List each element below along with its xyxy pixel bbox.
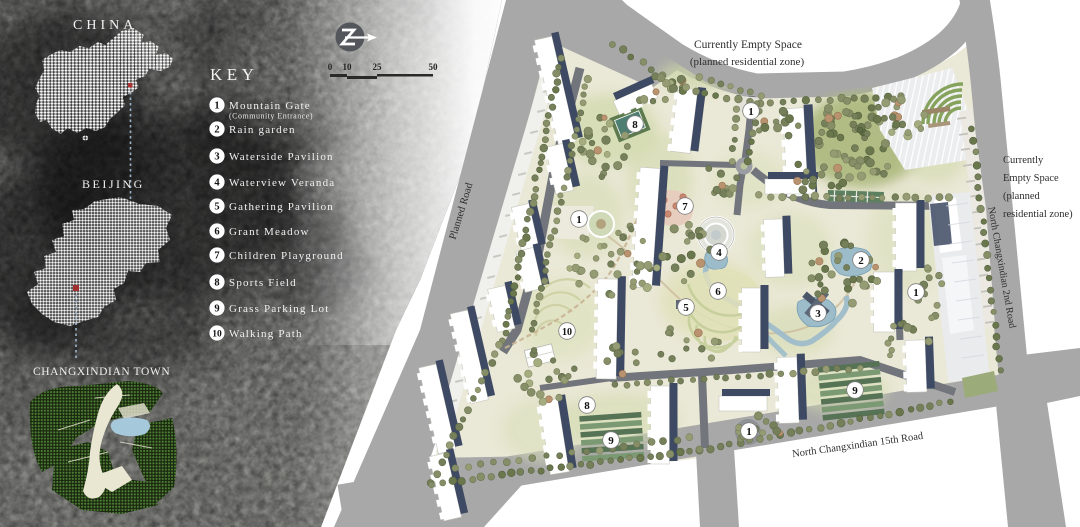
svg-text:Grass Parking Lot: Grass Parking Lot (229, 303, 329, 315)
svg-text:Grant Meadow: Grant Meadow (229, 226, 310, 238)
svg-text:5: 5 (683, 302, 689, 314)
svg-text:1: 1 (748, 106, 754, 118)
svg-text:Gathering Pavilion: Gathering Pavilion (229, 201, 334, 213)
svg-text:Rain garden: Rain garden (229, 124, 296, 136)
svg-text:3: 3 (214, 152, 219, 163)
svg-text:8: 8 (632, 119, 638, 131)
svg-text:5: 5 (214, 202, 219, 213)
svg-text:Waterview Veranda: Waterview Veranda (229, 177, 335, 189)
svg-text:(planned residential zone): (planned residential zone) (690, 56, 805, 68)
svg-text:KEY: KEY (210, 65, 258, 84)
svg-text:10: 10 (343, 62, 353, 72)
svg-text:Walking Path: Walking Path (229, 328, 303, 340)
svg-text:2: 2 (214, 125, 219, 136)
svg-text:0: 0 (328, 62, 333, 72)
svg-text:6: 6 (214, 227, 219, 238)
svg-text:50: 50 (429, 62, 439, 72)
svg-text:BEIJING: BEIJING (82, 177, 145, 191)
svg-text:4: 4 (214, 178, 220, 189)
svg-text:(planned: (planned (1003, 191, 1040, 202)
svg-text:9: 9 (852, 385, 858, 397)
svg-text:7: 7 (214, 251, 219, 262)
svg-text:Children Playground: Children Playground (229, 250, 344, 262)
svg-text:Sports Field: Sports Field (229, 277, 297, 289)
svg-text:4: 4 (716, 247, 722, 259)
svg-text:1: 1 (746, 426, 752, 438)
svg-text:6: 6 (715, 286, 721, 298)
svg-text:2: 2 (858, 255, 864, 267)
svg-text:1: 1 (214, 101, 219, 112)
svg-text:3: 3 (815, 308, 821, 320)
svg-text:Waterside Pavilion: Waterside Pavilion (229, 151, 334, 163)
svg-text:1: 1 (913, 287, 919, 299)
svg-text:7: 7 (682, 201, 688, 213)
svg-text:8: 8 (584, 400, 590, 412)
svg-text:residential zone): residential zone) (1003, 209, 1073, 220)
svg-text:(Community Entrance): (Community Entrance) (229, 112, 313, 121)
svg-text:1: 1 (576, 214, 582, 226)
svg-text:Currently Empty Space: Currently Empty Space (694, 39, 802, 51)
svg-text:Currently: Currently (1003, 155, 1044, 166)
svg-text:25: 25 (373, 62, 383, 72)
svg-text:Mountain Gate: Mountain Gate (229, 100, 311, 112)
svg-text:10: 10 (212, 330, 222, 340)
svg-text:10: 10 (562, 327, 572, 338)
svg-text:Empty Space: Empty Space (1003, 173, 1059, 184)
svg-text:CHINA: CHINA (73, 18, 137, 33)
svg-text:9: 9 (214, 304, 219, 315)
svg-text:CHANGXINDIAN TOWN: CHANGXINDIAN TOWN (33, 366, 170, 378)
svg-text:9: 9 (608, 435, 614, 447)
svg-text:8: 8 (214, 278, 219, 289)
